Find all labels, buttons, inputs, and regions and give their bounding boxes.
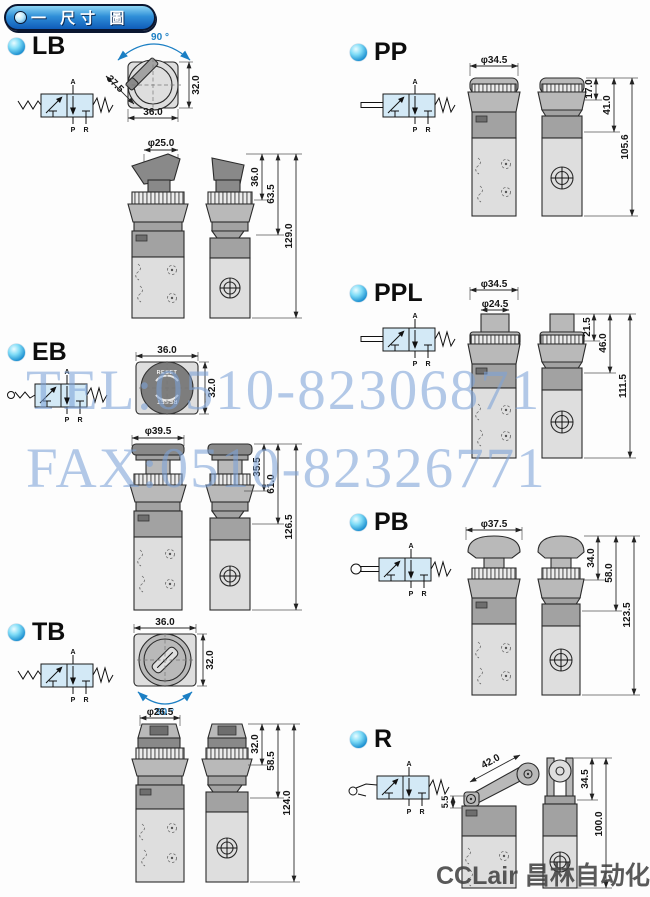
spring-icon bbox=[87, 388, 107, 402]
lb-dim3: 129.0 bbox=[284, 223, 295, 248]
pb-schematic: A P R bbox=[344, 540, 456, 600]
ppl-dim1: 21.5 bbox=[582, 317, 593, 337]
valve-3-2-symbol: A P R bbox=[18, 79, 113, 134]
pb-dim1: 34.0 bbox=[586, 548, 597, 568]
banner-dot-icon bbox=[14, 11, 27, 24]
pp-dim1: 17.0 bbox=[584, 79, 595, 99]
port-p-label: P bbox=[71, 127, 76, 134]
eb-dim3: 126.5 bbox=[284, 514, 295, 539]
pb-dim2: 58.0 bbox=[604, 563, 615, 583]
port-a-label: A bbox=[408, 543, 413, 550]
pb-front-view bbox=[468, 536, 520, 695]
tb-top-body bbox=[134, 633, 196, 687]
label-text: PPL bbox=[374, 279, 423, 308]
ppl-drawing: φ34.5 φ24.5 21.5 46.0 111.5 bbox=[450, 278, 650, 492]
bullet-icon bbox=[350, 44, 367, 61]
port-p-label: P bbox=[413, 127, 418, 134]
section-label-tb: TB bbox=[8, 618, 65, 647]
spring-icon bbox=[93, 98, 113, 112]
eb-side-view bbox=[206, 444, 254, 610]
lb-knob-dia: φ25.0 bbox=[148, 138, 175, 149]
port-r-label: R bbox=[77, 417, 82, 424]
lb-side-view bbox=[206, 158, 254, 318]
port-p-label: P bbox=[413, 361, 418, 368]
eb-dim2: 61.0 bbox=[266, 474, 277, 494]
eb-top-width: 36.0 bbox=[157, 345, 177, 356]
port-r-label: R bbox=[419, 809, 424, 816]
port-a-label: A bbox=[64, 369, 69, 376]
tb-knob-dia: φ26.5 bbox=[147, 707, 174, 718]
section-label-pp: PP bbox=[350, 38, 407, 67]
port-p-label: P bbox=[71, 697, 76, 704]
push-actuator-icon bbox=[361, 103, 383, 108]
ppl-front-view bbox=[468, 314, 520, 458]
section-label-ppl: PPL bbox=[350, 279, 423, 308]
port-a-label: A bbox=[412, 79, 417, 86]
r-schematic: A P R bbox=[342, 758, 454, 818]
port-a-label: A bbox=[406, 761, 411, 768]
pb-side-view bbox=[538, 536, 584, 695]
pp-dim3: 105.6 bbox=[620, 134, 631, 159]
r-dim2: 100.0 bbox=[594, 811, 605, 836]
port-r-label: R bbox=[421, 591, 426, 598]
spring-icon bbox=[93, 668, 113, 682]
pb-drawing: φ37.5 34.0 58.0 123.5 bbox=[450, 518, 650, 726]
tb-side-view bbox=[202, 724, 252, 882]
valve-3-2-symbol: A P R bbox=[8, 369, 108, 424]
lb-dim2: 63.5 bbox=[266, 184, 277, 204]
ppl-dim2: 46.0 bbox=[598, 333, 609, 353]
bullet-icon bbox=[350, 731, 367, 748]
port-p-label: P bbox=[65, 417, 70, 424]
pp-cap-dia: φ34.5 bbox=[481, 55, 508, 66]
lb-schematic: A P R bbox=[6, 76, 118, 136]
label-text: TB bbox=[32, 618, 65, 647]
spring-icon bbox=[431, 562, 451, 576]
rotation-arc bbox=[118, 44, 190, 60]
label-text: PB bbox=[374, 508, 409, 537]
label-text: EB bbox=[32, 338, 67, 367]
lever-actuator-icon bbox=[18, 101, 41, 109]
ppl-button-dia: φ24.5 bbox=[482, 299, 509, 310]
section-label-eb: EB bbox=[8, 338, 67, 367]
tb-top-height: 32.0 bbox=[205, 650, 216, 670]
port-r-label: R bbox=[83, 127, 88, 134]
bullet-icon bbox=[8, 624, 25, 641]
eb-front-view bbox=[130, 444, 186, 610]
valve-3-2-symbol: A P R bbox=[351, 543, 451, 598]
tb-dim3: 124.0 bbox=[282, 790, 293, 815]
port-a-label: A bbox=[412, 313, 417, 320]
port-p-label: P bbox=[407, 809, 412, 816]
pp-drawing: φ34.5 17.0 41.0 105.6 bbox=[450, 54, 650, 266]
ppl-side-view bbox=[538, 314, 586, 458]
eb-dim1: 35.5 bbox=[252, 457, 263, 477]
port-r-label: R bbox=[425, 127, 430, 134]
lb-dim1: 36.0 bbox=[250, 167, 261, 187]
tb-top-view: 36.0 32.0 90 ° bbox=[116, 616, 234, 720]
section-label-lb: LB bbox=[8, 32, 65, 61]
lb-top-width: 36.0 bbox=[143, 107, 163, 118]
port-a-label: A bbox=[70, 649, 75, 656]
eb-schematic: A P R bbox=[0, 366, 112, 426]
port-p-label: P bbox=[409, 591, 414, 598]
push-actuator-icon bbox=[361, 337, 383, 342]
bullet-icon bbox=[8, 38, 25, 55]
tb-schematic: A P R bbox=[6, 646, 118, 706]
ppl-dim3: 111.5 bbox=[618, 374, 629, 398]
brand-logo: CCLair 昌林自动化 bbox=[436, 856, 650, 892]
tb-dim2: 58.5 bbox=[266, 751, 277, 771]
valve-3-2-symbol: A P R bbox=[349, 761, 449, 816]
section-header-banner: 一 尺寸 圖 bbox=[4, 4, 156, 31]
eb-top-body: RESET RESET bbox=[136, 361, 198, 415]
label-text: LB bbox=[32, 32, 65, 61]
pb-cap-dia: φ37.5 bbox=[481, 519, 508, 530]
tb-top-width: 36.0 bbox=[155, 617, 175, 628]
dimension-diagram-page: { "header": { "title": "一 尺寸 圖" }, "wate… bbox=[0, 0, 650, 897]
valve-3-2-symbol: A P R bbox=[361, 79, 455, 134]
ppl-cap-dia: φ34.5 bbox=[481, 279, 508, 290]
lb-top-height: 32.0 bbox=[191, 75, 202, 95]
pp-schematic: A P R bbox=[348, 76, 460, 136]
push-lock-actuator-icon bbox=[8, 392, 36, 399]
pp-dim2: 41.0 bbox=[602, 95, 613, 115]
lb-angle-label: 90 ° bbox=[151, 32, 169, 43]
port-r-label: R bbox=[83, 697, 88, 704]
key-actuator-icon bbox=[18, 671, 41, 679]
section-label-pb: PB bbox=[350, 508, 409, 537]
eb-drawing: φ39.5 35.5 61.0 126.5 bbox=[110, 424, 314, 620]
r-dim0: 5.5 bbox=[440, 796, 450, 809]
label-text: PP bbox=[374, 38, 407, 67]
ppl-schematic: A P R bbox=[348, 310, 460, 370]
eb-knob-dia: φ39.5 bbox=[145, 426, 172, 437]
r-lever-length: 42.0 bbox=[480, 752, 503, 771]
section-label-r: R bbox=[350, 725, 392, 754]
bullet-icon bbox=[350, 285, 367, 302]
tb-dim1: 32.0 bbox=[250, 734, 261, 754]
pp-front-view bbox=[468, 78, 520, 216]
tb-drawing: φ26.5 32.0 58.5 124.0 bbox=[110, 706, 314, 892]
eb-top-height: 32.0 bbox=[207, 378, 218, 398]
bullet-icon bbox=[350, 514, 367, 531]
rotation-arc bbox=[138, 692, 192, 704]
r-dim1: 34.5 bbox=[580, 769, 591, 789]
page-title: 一 尺寸 圖 bbox=[31, 7, 129, 28]
port-a-label: A bbox=[70, 79, 75, 86]
pp-side-view bbox=[538, 78, 586, 216]
label-text: R bbox=[374, 725, 392, 754]
pb-dim3: 123.5 bbox=[622, 602, 633, 627]
lb-front-view bbox=[128, 154, 188, 318]
bullet-icon bbox=[8, 344, 25, 361]
lb-drawing: φ25.0 36.0 63.5 129.0 bbox=[110, 136, 314, 334]
valve-3-2-symbol: A P R bbox=[361, 313, 455, 368]
valve-3-2-symbol: A P R bbox=[18, 649, 113, 704]
port-r-label: R bbox=[425, 361, 430, 368]
roller-lever-actuator-icon bbox=[349, 784, 377, 796]
button-actuator-icon bbox=[351, 564, 379, 574]
tb-front-view bbox=[132, 724, 188, 882]
